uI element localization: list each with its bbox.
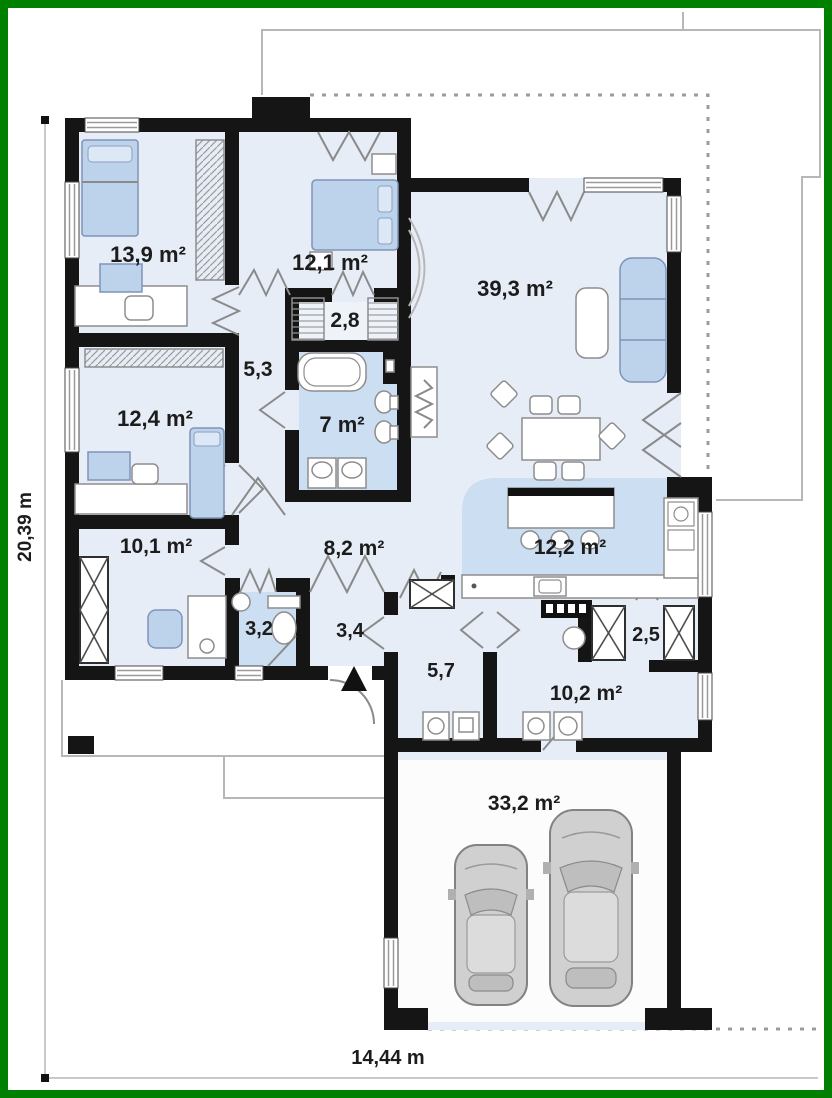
pillow [194, 432, 220, 446]
sofa [620, 258, 666, 382]
sink [232, 593, 250, 611]
window [85, 118, 139, 132]
porch-outline [62, 680, 384, 756]
window [698, 673, 712, 720]
pillow [378, 186, 392, 212]
window [698, 512, 712, 597]
computer [88, 452, 130, 480]
room-label-kitchen: 12,2 m² [534, 536, 606, 559]
room-label-bathroom: 7 m² [319, 412, 364, 437]
wardrobe [85, 349, 223, 367]
desk [75, 484, 187, 514]
window [115, 666, 163, 680]
shelf [292, 298, 324, 340]
tall-cabinet [664, 498, 698, 578]
shelf [368, 298, 398, 340]
chair [530, 396, 552, 414]
room-label-pantry: 2,5 [632, 624, 660, 646]
window [65, 368, 79, 452]
room-label-bedroom4: 10,1 m² [120, 535, 192, 558]
wardrobe [196, 140, 224, 280]
window [65, 182, 79, 258]
window [584, 178, 663, 192]
room-label-utility: 10,2 m² [550, 682, 622, 705]
room-label-bedroom1: 13,9 m² [110, 242, 186, 267]
bathtub [298, 353, 366, 391]
window [235, 666, 263, 680]
room-label-garage: 33,2 m² [488, 792, 560, 815]
porch-step-outline [224, 756, 390, 798]
room-label-bedroom2: 12,1 m² [292, 250, 368, 275]
pillow [88, 146, 132, 162]
dining-table [522, 418, 600, 460]
counter [462, 575, 698, 598]
car-large [543, 810, 639, 1006]
chair [534, 462, 556, 480]
pillow [378, 218, 392, 244]
computer [100, 264, 142, 292]
car-small [448, 845, 534, 1005]
washer [523, 712, 550, 740]
floor-plan-drawing: 13,9 m² 12,1 m² 2,8 5,3 39,3 m² 12,4 m² … [0, 0, 832, 1098]
porch-column [68, 736, 94, 754]
room-label-closet: 2,8 [330, 309, 360, 332]
dimension-width: 14,44 m [351, 1047, 424, 1069]
nightstand [372, 154, 396, 174]
room-label-wc: 3,2 [245, 618, 273, 640]
chair [132, 464, 158, 484]
chair [125, 296, 153, 320]
dimension-height: 20,39 m [15, 492, 36, 562]
fireplace [411, 367, 437, 437]
room-label-hall-bedrooms: 5,3 [243, 358, 272, 381]
dryer [554, 712, 582, 740]
armchair [148, 610, 182, 648]
window [667, 196, 681, 252]
floor-plan-page: 13,9 m² 12,1 m² 2,8 5,3 39,3 m² 12,4 m² … [0, 0, 832, 1098]
toilet-tank [268, 596, 300, 608]
appliance [453, 712, 479, 740]
room-label-vestibule: 3,4 [336, 620, 365, 642]
wardrobe [80, 557, 108, 663]
room-label-living: 39,3 m² [477, 276, 553, 301]
washer [423, 712, 449, 740]
room-label-bedroom3: 12,4 m² [117, 406, 193, 431]
room-label-corridor: 8,2 m² [324, 537, 385, 560]
window [384, 938, 398, 988]
boiler [563, 627, 585, 649]
room-label-hall-entry: 5,7 [427, 660, 455, 682]
coffee-table [576, 288, 608, 358]
chair [562, 462, 584, 480]
lamp [200, 639, 214, 653]
chair [558, 396, 580, 414]
